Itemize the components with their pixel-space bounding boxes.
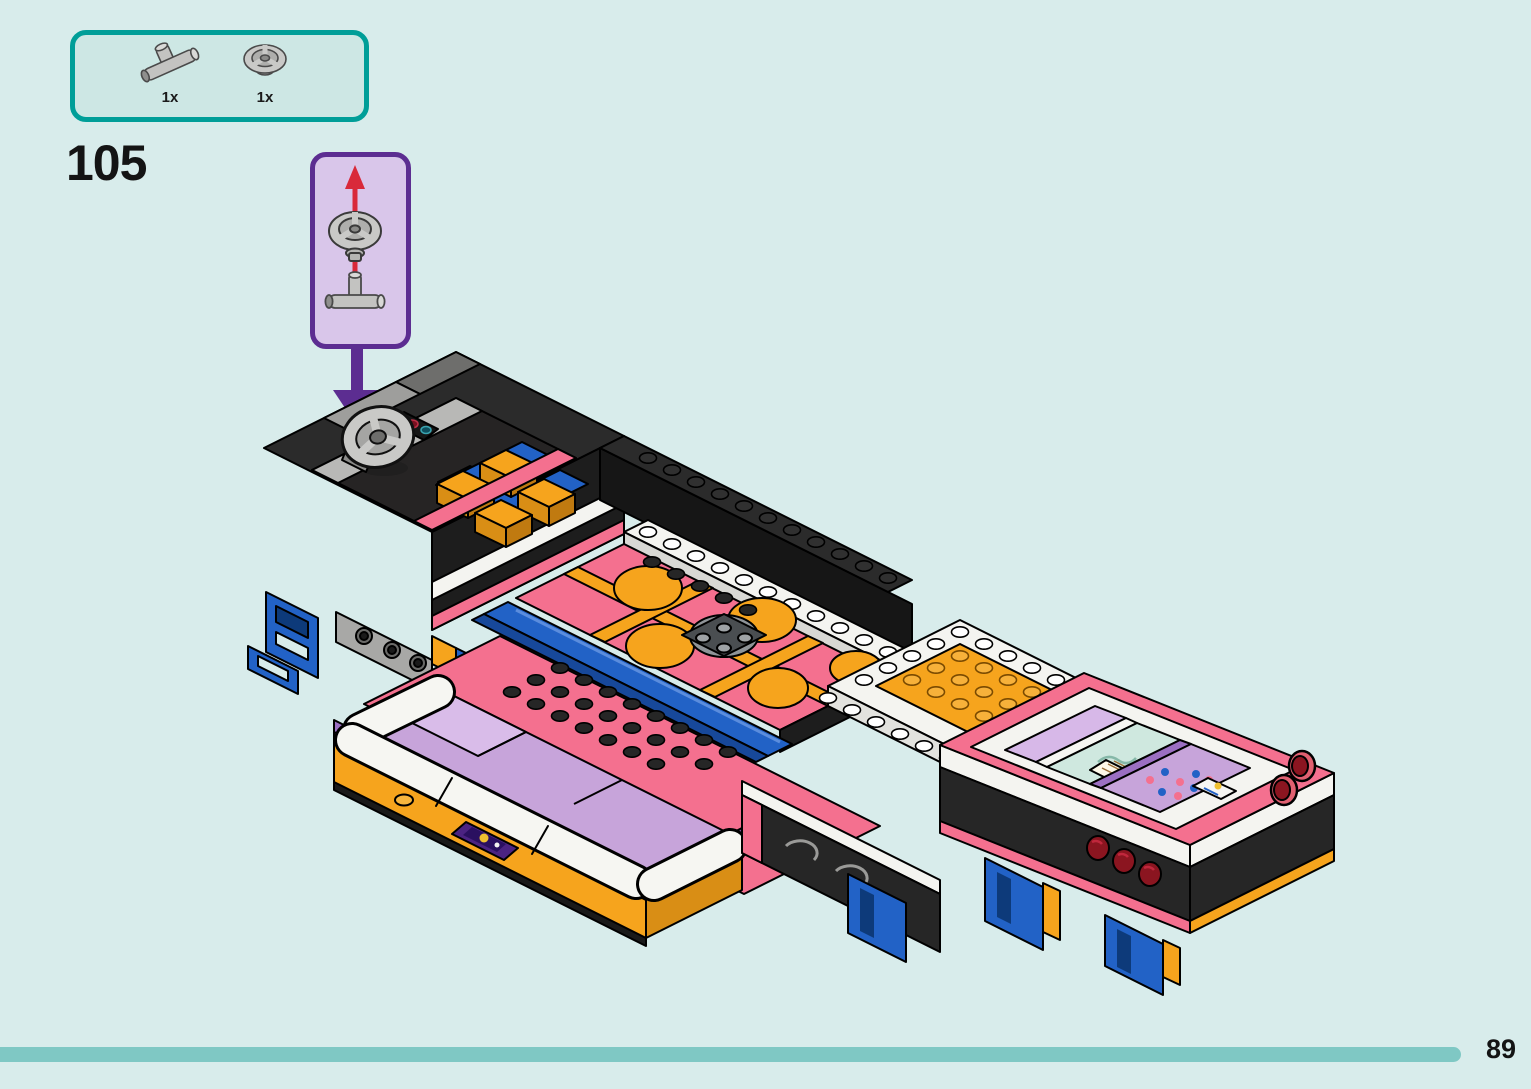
page-number: 89 (1478, 1034, 1524, 1065)
bed-assembly (940, 673, 1334, 995)
page-progress-bar (0, 1047, 1461, 1062)
instruction-page: { "step": { "number": "105" }, "parts_ca… (0, 0, 1531, 1089)
front-step-ladder (248, 592, 318, 694)
step-illustration (0, 0, 1531, 1089)
